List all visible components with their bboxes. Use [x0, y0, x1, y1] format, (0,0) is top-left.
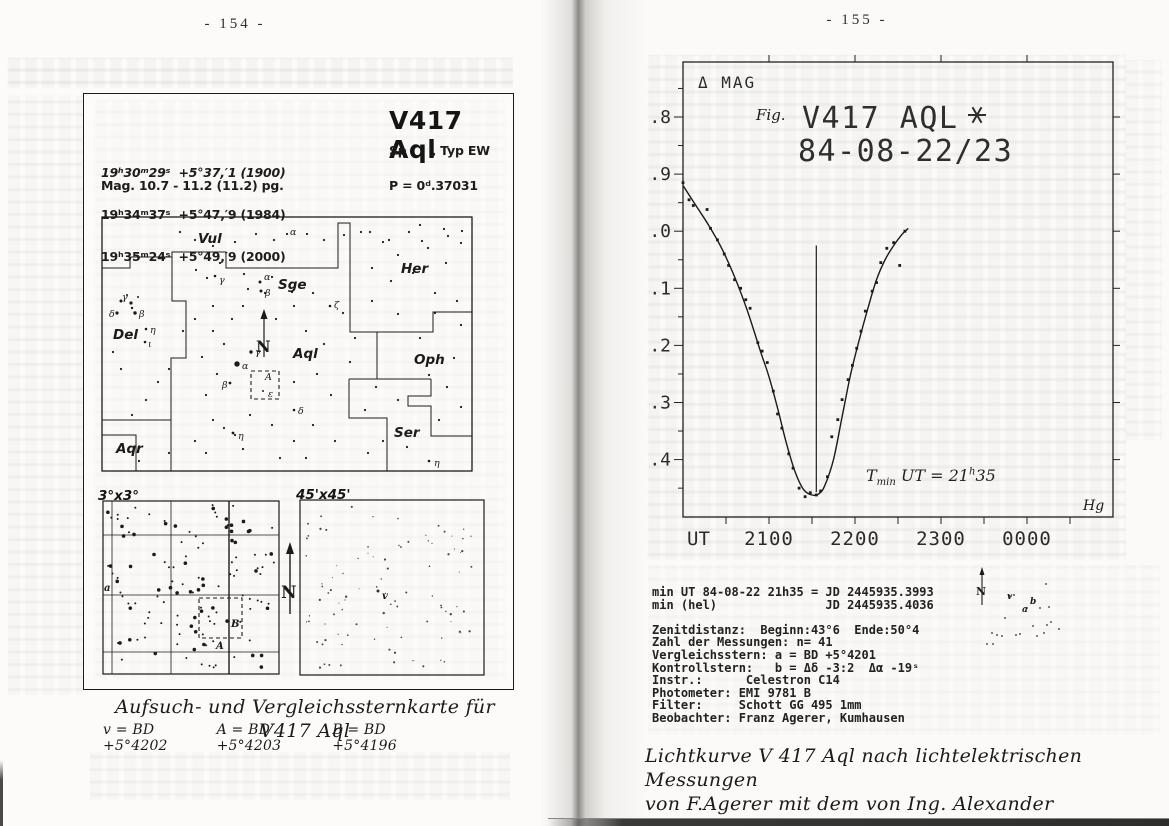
svg-text:0000: 0000 [1002, 528, 1052, 550]
svg-text:a: a [104, 583, 110, 594]
asterisk-icon [968, 107, 986, 123]
svg-text:A: A [264, 372, 272, 383]
svg-text:η: η [434, 458, 440, 469]
north-arrow-icon: N [256, 309, 271, 357]
svg-text:ζ: ζ [334, 300, 340, 311]
detail-map-3deg: aBA [102, 500, 280, 675]
main-star-map: VulSgeHerDelAqlOphSerAqrαγαβζγδβηιγαβδηA… [100, 215, 474, 473]
svg-text:η: η [150, 325, 156, 336]
svg-text:Aqr: Aqr [115, 441, 144, 457]
book-edge-shadow [548, 818, 1169, 826]
svg-text:2300: 2300 [916, 528, 966, 550]
north-arrow-icon: N [277, 542, 303, 626]
svg-text:δ: δ [298, 406, 304, 417]
svg-text:Fig.: Fig. [755, 106, 786, 124]
svg-text:A: A [215, 641, 224, 652]
svg-text:Her: Her [401, 261, 429, 277]
svg-text:a: a [1022, 605, 1028, 615]
svg-text:β: β [264, 288, 271, 299]
svg-text:γ: γ [219, 275, 225, 286]
svg-text:N: N [281, 583, 297, 603]
svg-text:N: N [976, 585, 986, 598]
svg-text:v: v [382, 591, 388, 602]
svg-text:Hg: Hg [1082, 498, 1104, 514]
magnitude-range: Mag. 10.7 - 11.2 (11.2) pg. [101, 179, 284, 193]
comparison-star-v: v = BD +5°4202 [103, 722, 217, 754]
svg-text:Δ MAG: Δ MAG [698, 73, 756, 92]
page-gutter-shadow [540, 0, 660, 826]
svg-text:α: α [290, 227, 297, 238]
spectral-type: Sp , Typ EW [389, 144, 490, 158]
svg-text:α: α [242, 361, 249, 372]
detail-map-45arcmin: v [299, 499, 485, 676]
period-value: P = 0ᵈ.37031 [389, 179, 478, 193]
observation-info-block: min UT 84-08-22 21h35 = JD 2445935.3993m… [652, 586, 992, 725]
svg-text:N: N [256, 337, 271, 356]
svg-text:2200: 2200 [830, 528, 880, 550]
lightcurve-caption: Lichtkurve V 417 Aql nach lichtelektrisc… [645, 744, 1135, 826]
svg-text:γ: γ [122, 292, 128, 303]
svg-text:Ser: Ser [394, 425, 421, 441]
north-arrow-icon: N [976, 567, 986, 605]
info-line: Vergleichsstern: a = BD +5°4201 [652, 649, 992, 662]
svg-text:η: η [238, 431, 244, 442]
svg-text:v: v [1007, 592, 1013, 602]
svg-text:Del: Del [113, 327, 138, 343]
svg-text:ι: ι [148, 339, 152, 350]
svg-text:b: b [1030, 597, 1036, 607]
svg-text:β: β [138, 309, 145, 320]
svg-text:Vul: Vul [198, 231, 222, 247]
tmin-annotation: Tmin UT = 21h35 [866, 466, 1076, 485]
svg-text:ε: ε [268, 389, 273, 400]
svg-text:V417 AQL: V417 AQL [802, 101, 959, 136]
info-line: min UT 84-08-22 21h35 = JD 2445935.3993 [652, 586, 992, 599]
svg-text:α: α [264, 272, 271, 283]
svg-text:β: β [221, 380, 228, 391]
svg-text:δ: δ [109, 309, 115, 320]
svg-text:B: B [230, 619, 239, 630]
finder-chart-frame: 19ʰ30ᵐ29ˢ +5°37,′1 (1900) 19ʰ34ᵐ37ˢ +5°4… [83, 93, 514, 690]
info-line: min (hel) JD 2445935.4036 [652, 599, 992, 612]
page-number-right: - 155 - [777, 12, 937, 29]
info-line: Instr.: Celestron C14 [652, 674, 992, 687]
info-line: Beobachter: Franz Agerer, Kumhausen [652, 712, 992, 725]
page-number-left: - 154 - [155, 16, 315, 33]
comparison-star-inset-map: Nvab [953, 563, 1123, 663]
svg-text:2100: 2100 [744, 528, 794, 550]
svg-text:UT: UT [687, 528, 710, 550]
svg-text:Aql: Aql [292, 346, 318, 362]
comparison-star-b: B = BD +5°4196 [332, 722, 448, 754]
info-line [652, 611, 992, 624]
book-scan: - 154 - 19ʰ30ᵐ29ˢ +5°37,′1 (1900) 19ʰ34ᵐ… [0, 0, 1169, 826]
scan-edge-shadow [0, 760, 3, 826]
comparison-star-a: A = BD +5°4203 [217, 722, 333, 754]
svg-text:Sge: Sge [278, 277, 307, 293]
svg-text:Oph: Oph [414, 352, 445, 368]
svg-text:84-08-22/23: 84-08-22/23 [798, 134, 1013, 169]
